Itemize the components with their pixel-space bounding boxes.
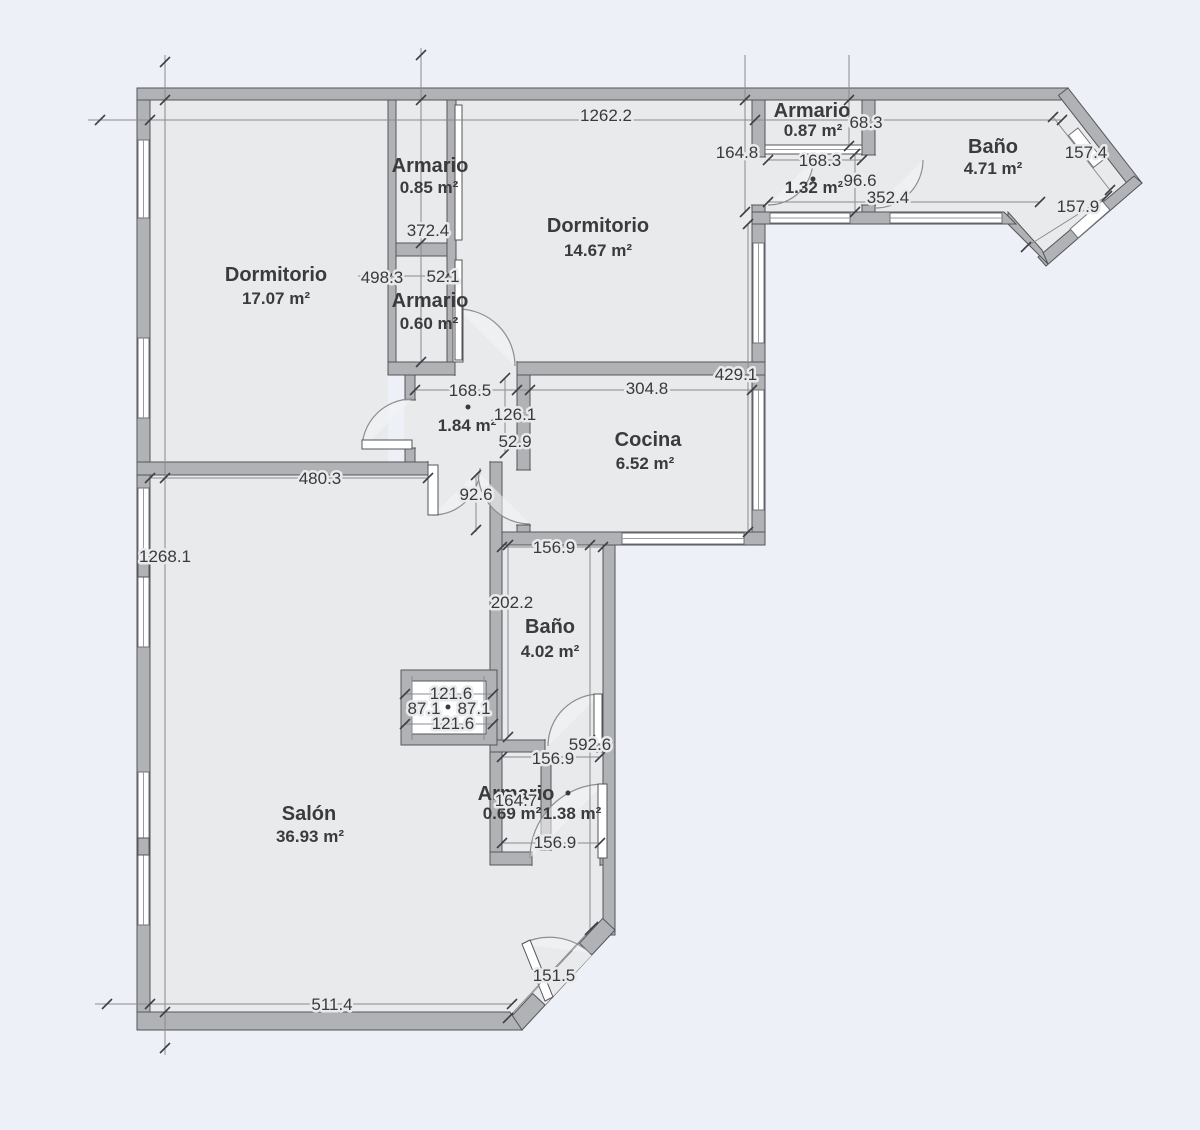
room-label-bano-tr: Baño	[968, 136, 1018, 158]
room-area-armario-sup: 0.85 m²	[400, 178, 459, 197]
dim-92-6: 92.6	[459, 485, 492, 504]
dim-52-9: 52.9	[498, 432, 531, 451]
dim-157-9: 157.9	[1057, 197, 1100, 216]
room-area-salon: 36.93 m²	[276, 827, 344, 846]
door-leaf-dorm-izq	[362, 440, 412, 449]
room-area-dormitorio-izq: 17.07 m²	[242, 289, 310, 308]
dim-68-3: 68.3	[849, 113, 882, 132]
dim-168-5: 168.5	[449, 381, 492, 400]
room-area-armario-tr: 0.87 m²	[784, 121, 843, 140]
dim-372-4: 372.4	[407, 221, 450, 240]
dim-1262-2: 1262.2	[580, 106, 632, 125]
floor-dormitorio-izq-bajo	[150, 375, 388, 465]
room-label-cocina: Cocina	[615, 429, 683, 451]
dim-157-4: 157.4	[1065, 143, 1108, 162]
dim-126-1: 126.1	[494, 405, 537, 424]
dim-480-3: 480.3	[299, 469, 342, 488]
dim-151-5: 151.5	[533, 966, 576, 985]
room-area-vestibulo-inf: 1.38 m²	[543, 804, 602, 823]
wall-dormitorio-der-bottom	[388, 362, 765, 375]
room-area-bano-med: 4.02 m²	[521, 642, 580, 661]
dot-distribuidor	[466, 405, 471, 410]
room-label-armario-tr: Armario	[774, 100, 851, 122]
dim-156-9c: 156.9	[534, 833, 577, 852]
dim-1268-1: 1268.1	[139, 547, 191, 566]
dot-distribuidor-tr	[811, 177, 816, 182]
floorplan-canvas: Dormitorio 17.07 m² Armario 0.85 m² Arma…	[0, 0, 1200, 1130]
dim-352-4: 352.4	[867, 188, 910, 207]
room-area-dormitorio-der: 14.67 m²	[564, 241, 632, 260]
dim-592-6: 592.6	[569, 735, 612, 754]
dim-156-9b: 156.9	[532, 749, 575, 768]
room-label-bano-med: Baño	[525, 616, 575, 638]
dim-511-4: 511.4	[311, 995, 352, 1014]
dim-164-7: 164.7	[495, 791, 538, 810]
dim-156-9a: 156.9	[533, 538, 576, 557]
room-label-dormitorio-izq: Dormitorio	[225, 264, 327, 286]
room-label-armario-med: Armario	[392, 290, 469, 312]
room-label-armario-sup: Armario	[392, 155, 469, 177]
room-area-cocina: 6.52 m²	[616, 454, 675, 473]
dim-168-3: 168.3	[799, 151, 842, 170]
dim-304-8: 304.8	[626, 379, 669, 398]
room-label-salon: Salón	[282, 803, 336, 825]
dim-202-2: 202.2	[491, 593, 534, 612]
wall-dormitorio-salon	[137, 462, 428, 475]
dim-121-6b: 121.6	[432, 714, 475, 733]
window-mullion-2	[138, 838, 149, 855]
room-label-dormitorio-der: Dormitorio	[547, 215, 649, 237]
dim-52-1: 52.1	[426, 267, 459, 286]
dot-shaft	[446, 705, 451, 710]
door-opening-dorm-der	[455, 361, 517, 376]
wall-top	[137, 88, 1068, 100]
door-leaf-salon-hall	[428, 465, 438, 515]
room-area-bano-tr: 4.71 m²	[964, 159, 1023, 178]
room-area-distribuidor: 1.84 m²	[438, 416, 497, 435]
wall-armario-strip-left	[388, 100, 396, 365]
wall-bottom	[137, 1012, 522, 1030]
room-area-armario-med: 0.60 m²	[400, 314, 459, 333]
dim-498-3: 498.3	[361, 268, 404, 287]
dot-vestibulo	[566, 791, 571, 796]
dim-429-1: 429.1	[715, 365, 758, 384]
dim-164-8: 164.8	[716, 143, 759, 162]
